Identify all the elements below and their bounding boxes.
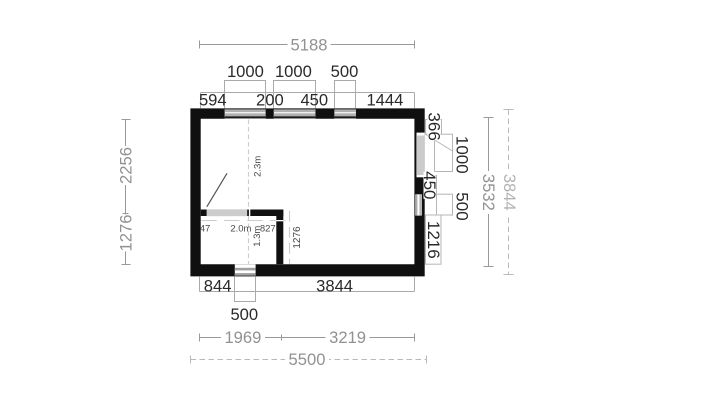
svg-text:1.3m: 1.3m (252, 226, 263, 247)
svg-text:1000: 1000 (452, 136, 471, 174)
svg-text:1276: 1276 (292, 226, 303, 249)
svg-text:1444: 1444 (366, 91, 403, 110)
svg-text:844: 844 (204, 276, 232, 295)
svg-text:3219: 3219 (329, 328, 366, 347)
svg-text:1969: 1969 (224, 328, 261, 347)
svg-text:3532: 3532 (479, 174, 498, 211)
svg-text:200: 200 (256, 91, 284, 110)
svg-text:2.0m: 2.0m (230, 224, 251, 235)
svg-text:450: 450 (420, 171, 439, 199)
svg-text:1000: 1000 (227, 62, 264, 81)
svg-text:1000: 1000 (275, 62, 312, 81)
svg-text:3844: 3844 (316, 276, 353, 295)
svg-text:47: 47 (200, 224, 211, 235)
svg-text:500: 500 (230, 305, 258, 324)
svg-text:2.3m: 2.3m (253, 156, 264, 177)
svg-text:5188: 5188 (291, 36, 328, 55)
svg-text:3844: 3844 (500, 174, 519, 211)
svg-text:5500: 5500 (289, 350, 326, 369)
svg-text:2256: 2256 (116, 147, 135, 184)
svg-text:1216: 1216 (424, 221, 443, 259)
svg-text:500: 500 (452, 192, 471, 220)
svg-text:366: 366 (424, 112, 443, 140)
svg-text:1276: 1276 (116, 215, 135, 252)
svg-text:594: 594 (199, 91, 227, 110)
svg-text:500: 500 (331, 62, 359, 81)
svg-text:450: 450 (300, 91, 328, 110)
